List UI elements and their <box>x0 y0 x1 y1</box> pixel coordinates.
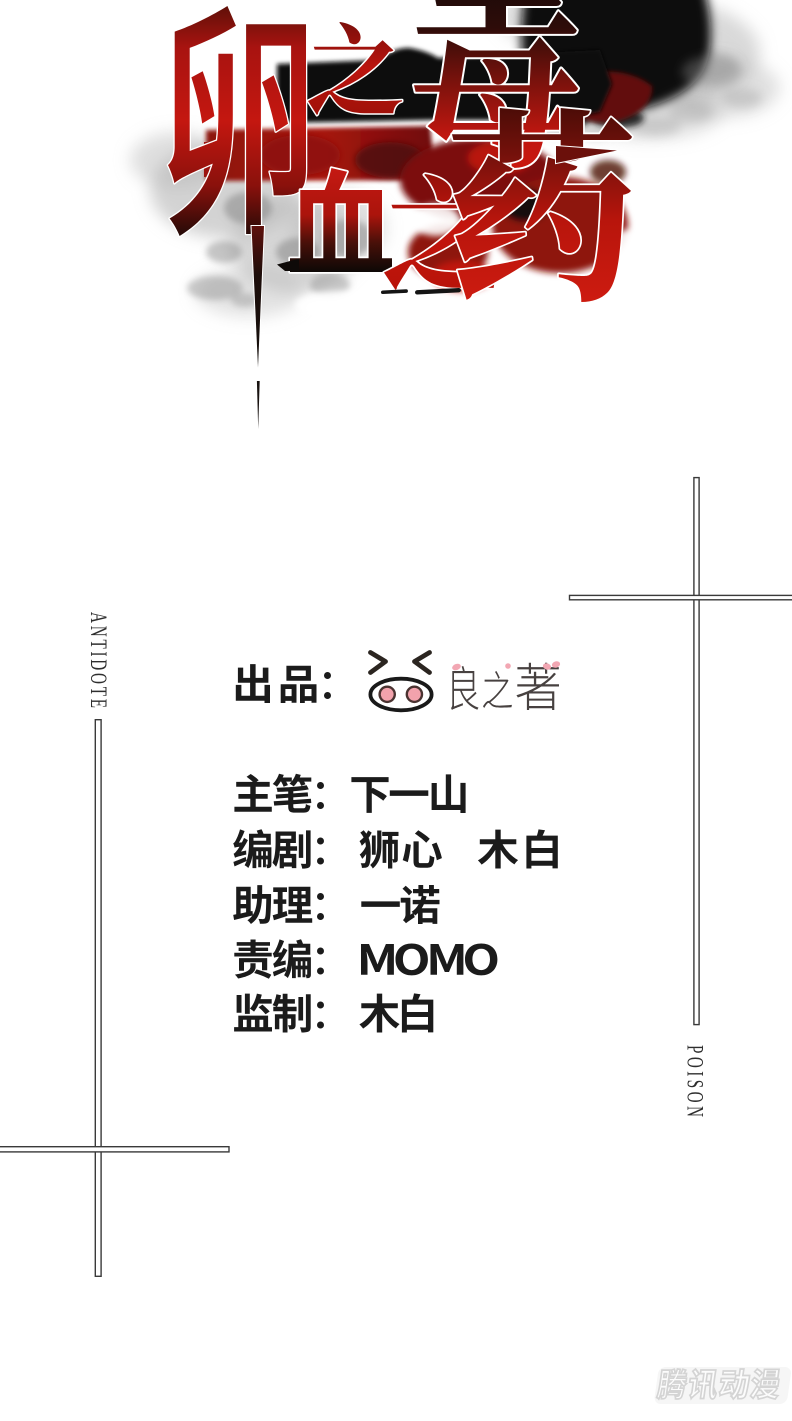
svg-text:POISON: POISON <box>682 1045 707 1120</box>
svg-text:ANTIDOTE: ANTIDOTE <box>85 612 110 711</box>
